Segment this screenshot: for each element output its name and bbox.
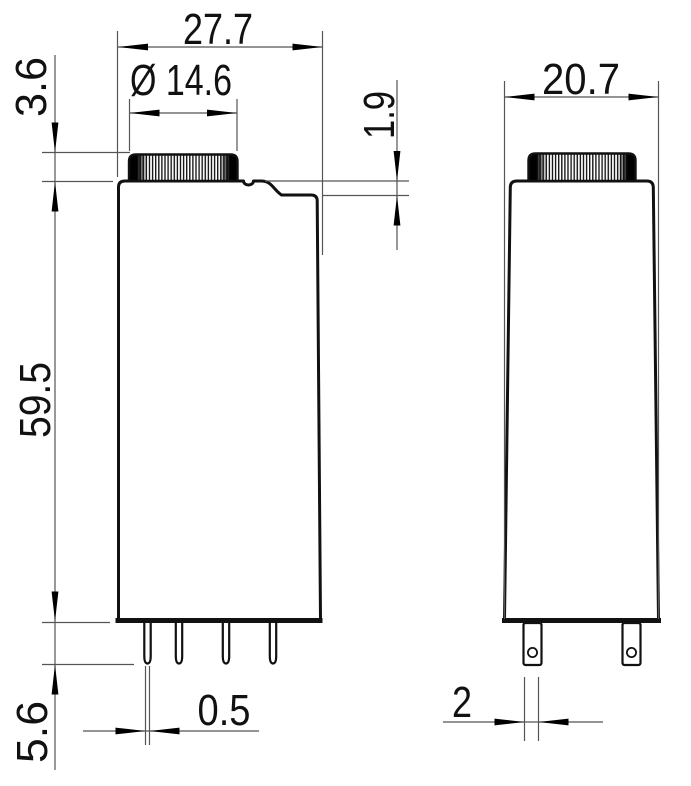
knob-edge-shading <box>129 155 238 182</box>
dim-label-pin-thickness: 0.5 <box>198 686 251 735</box>
side-knob <box>529 154 636 182</box>
dim-pin-length: 5.6 <box>8 665 134 764</box>
arrowhead <box>150 728 180 735</box>
arrowhead <box>116 728 146 735</box>
arrowhead <box>207 110 237 117</box>
arrowhead <box>539 719 569 726</box>
front-pins <box>144 623 276 664</box>
arrowhead <box>52 123 59 153</box>
arrowhead <box>293 44 323 51</box>
dim-label-pin-length: 5.6 <box>8 701 57 763</box>
arrowhead <box>394 196 401 226</box>
blade-pin <box>524 623 542 665</box>
pin-hole <box>627 648 636 657</box>
dim-label-side-width: 20.7 <box>542 55 620 104</box>
blade-pin <box>623 623 641 665</box>
front-view <box>116 155 323 664</box>
arrowhead <box>52 182 59 212</box>
dim-pin-thickness: 0.5 <box>83 666 259 745</box>
dim-label-front-width: 27.7 <box>183 5 253 54</box>
dim-label-collar-step: 1.9 <box>355 91 404 139</box>
pin-hole <box>528 648 537 657</box>
pin <box>270 623 276 664</box>
arrowhead <box>52 665 59 695</box>
dim-label-body-height: 59.5 <box>11 362 60 438</box>
dim-knob-diameter: Ø 14.6 <box>130 56 238 151</box>
dim-body-height: 59.5 <box>11 362 110 623</box>
dim-label-pin-width: 2 <box>452 678 472 727</box>
pin <box>144 623 150 664</box>
arrowhead <box>495 719 525 726</box>
arrowhead <box>505 94 535 101</box>
dim-knob-height: 3.6 <box>7 57 130 212</box>
side-body-outline <box>505 181 659 620</box>
front-knob <box>129 155 238 182</box>
pin <box>223 623 229 664</box>
side-pins <box>524 623 641 665</box>
arrowhead <box>394 151 401 181</box>
arrowhead <box>130 110 160 117</box>
knob-edge-shading <box>529 154 636 182</box>
arrowhead <box>118 44 148 51</box>
dim-pin-width: 2 <box>443 677 603 741</box>
front-body-outline <box>119 181 321 620</box>
relay-dimension-drawing: 27.7 Ø 14.6 3.6 59.5 5.6 1.9 <box>0 0 691 786</box>
pin <box>176 623 182 664</box>
dim-label-knob-height: 3.6 <box>7 57 56 117</box>
arrowhead <box>52 592 59 622</box>
arrowhead <box>629 94 659 101</box>
side-view <box>502 154 661 666</box>
drawing-canvas: 27.7 Ø 14.6 3.6 59.5 5.6 1.9 <box>0 0 691 786</box>
dim-label-knob-diameter: Ø 14.6 <box>130 56 232 105</box>
